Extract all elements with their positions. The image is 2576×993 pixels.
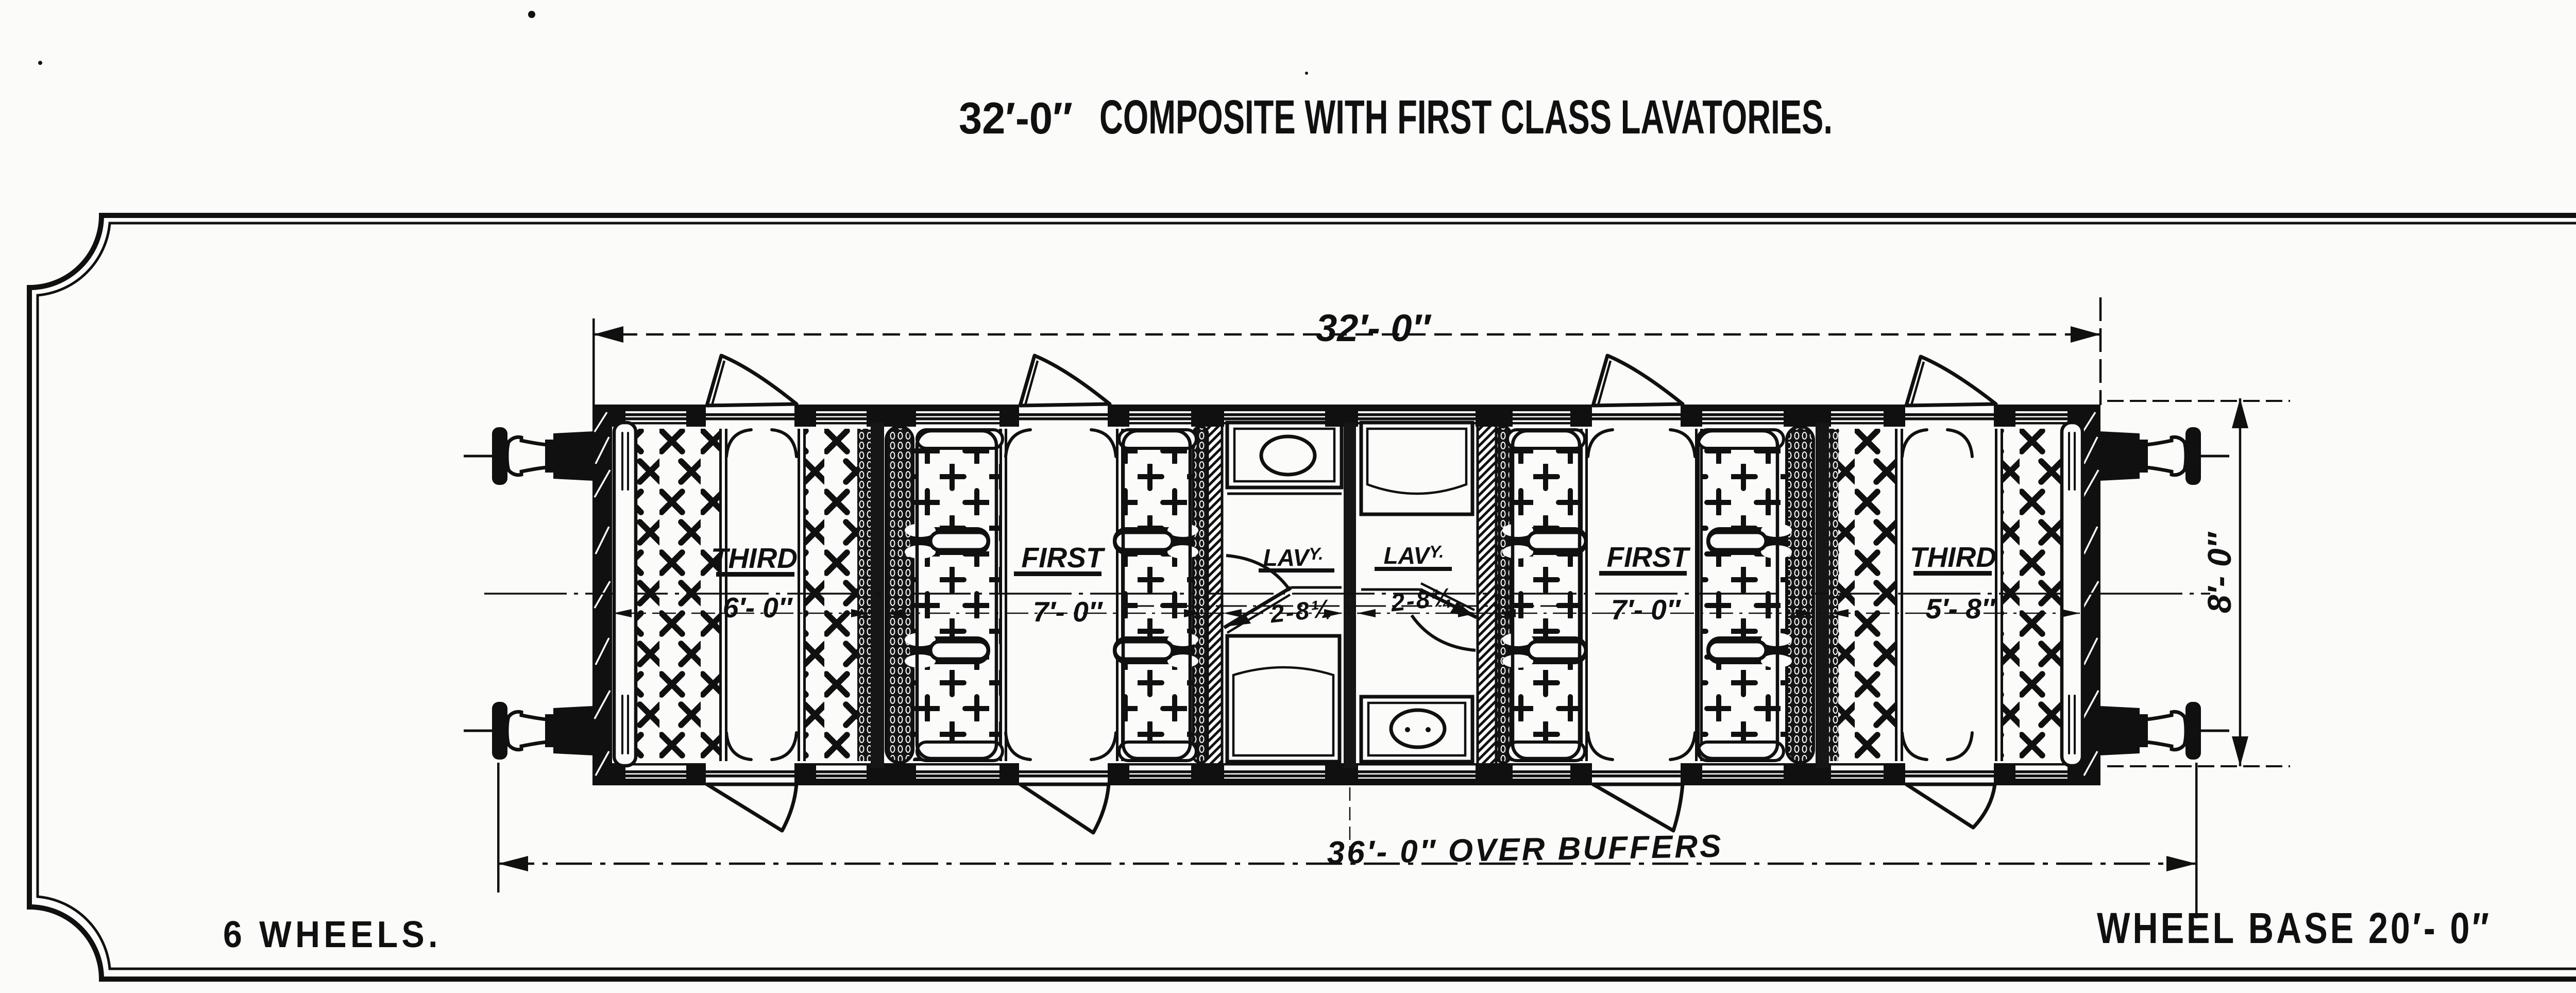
svg-text:36′- 0″ OVER BUFFERS: 36′- 0″ OVER BUFFERS [1327,829,1723,871]
svg-text:32′- 0″: 32′- 0″ [1316,307,1432,349]
svg-text:7′- 0″: 7′- 0″ [1033,596,1104,628]
svg-text:32′-0″: 32′-0″ [959,94,1073,143]
svg-text:THIRD: THIRD [711,542,798,574]
svg-text:WHEEL BASE 20′- 0″: WHEEL BASE 20′- 0″ [2097,904,2492,952]
svg-text:THIRD: THIRD [1910,541,1996,573]
svg-text:8′- 0″: 8′- 0″ [2201,531,2238,613]
svg-text:6′- 0″: 6′- 0″ [723,592,793,624]
svg-text:5′- 8″: 5′- 8″ [1926,593,1996,625]
svg-text:6 WHEELS.: 6 WHEELS. [223,914,442,955]
svg-text:COMPOSITE WITH FIRST CLASS LAV: COMPOSITE WITH FIRST CLASS LAVATORIES. [1099,90,1833,144]
svg-text:FIRST: FIRST [1022,542,1106,574]
svg-text:FIRST: FIRST [1607,541,1691,573]
svg-text:7′- 0″: 7′- 0″ [1611,594,1682,626]
